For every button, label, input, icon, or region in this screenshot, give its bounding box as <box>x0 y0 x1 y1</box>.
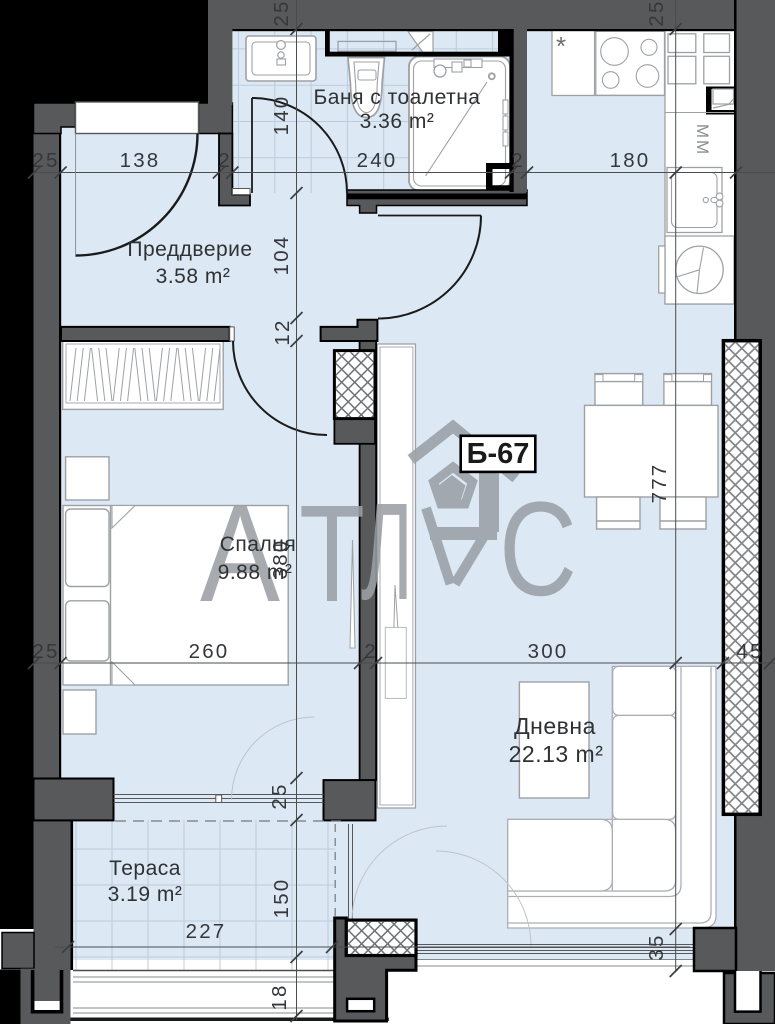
svg-text:140: 140 <box>270 95 293 136</box>
svg-text:Т: Т <box>299 477 365 631</box>
svg-text:2: 2 <box>218 149 232 172</box>
svg-text:22.13 m²: 22.13 m² <box>509 741 604 767</box>
svg-text:Л: Л <box>361 475 413 629</box>
svg-text:35: 35 <box>645 933 668 960</box>
svg-text:300: 300 <box>528 640 569 663</box>
svg-text:9.88 m²: 9.88 m² <box>218 561 293 584</box>
svg-text:25: 25 <box>32 149 59 172</box>
svg-text:777: 777 <box>648 463 671 504</box>
svg-text:45: 45 <box>736 640 763 663</box>
svg-text:С: С <box>499 475 577 624</box>
svg-text:Баня с тоалетна: Баня с тоалетна <box>314 86 481 109</box>
svg-text:12: 12 <box>271 318 294 345</box>
svg-text:25: 25 <box>32 640 59 663</box>
svg-text:25: 25 <box>645 0 668 27</box>
svg-text:Б-67: Б-67 <box>467 438 530 470</box>
svg-text:240: 240 <box>357 149 398 172</box>
svg-text:ММ: ММ <box>693 124 712 156</box>
svg-text:2: 2 <box>364 640 378 663</box>
svg-text:104: 104 <box>270 235 293 276</box>
svg-text:*: * <box>556 31 566 61</box>
svg-text:260: 260 <box>189 640 230 663</box>
svg-text:138: 138 <box>120 149 161 172</box>
svg-text:Дневна: Дневна <box>514 713 596 739</box>
svg-text:25: 25 <box>268 782 291 809</box>
svg-text:Спалня: Спалня <box>220 533 296 556</box>
svg-text:2: 2 <box>511 149 525 172</box>
svg-text:3.58 m²: 3.58 m² <box>156 265 231 288</box>
svg-text:25: 25 <box>270 0 293 27</box>
svg-text:180: 180 <box>610 149 651 172</box>
svg-text:3.36 m²: 3.36 m² <box>360 110 435 133</box>
svg-text:18: 18 <box>268 983 291 1010</box>
svg-text:Преддверие: Преддверие <box>127 238 252 261</box>
svg-text:3.19 m²: 3.19 m² <box>108 883 183 906</box>
svg-text:150: 150 <box>270 878 293 919</box>
svg-text:227: 227 <box>186 920 227 943</box>
svg-text:Тераса: Тераса <box>109 857 181 880</box>
